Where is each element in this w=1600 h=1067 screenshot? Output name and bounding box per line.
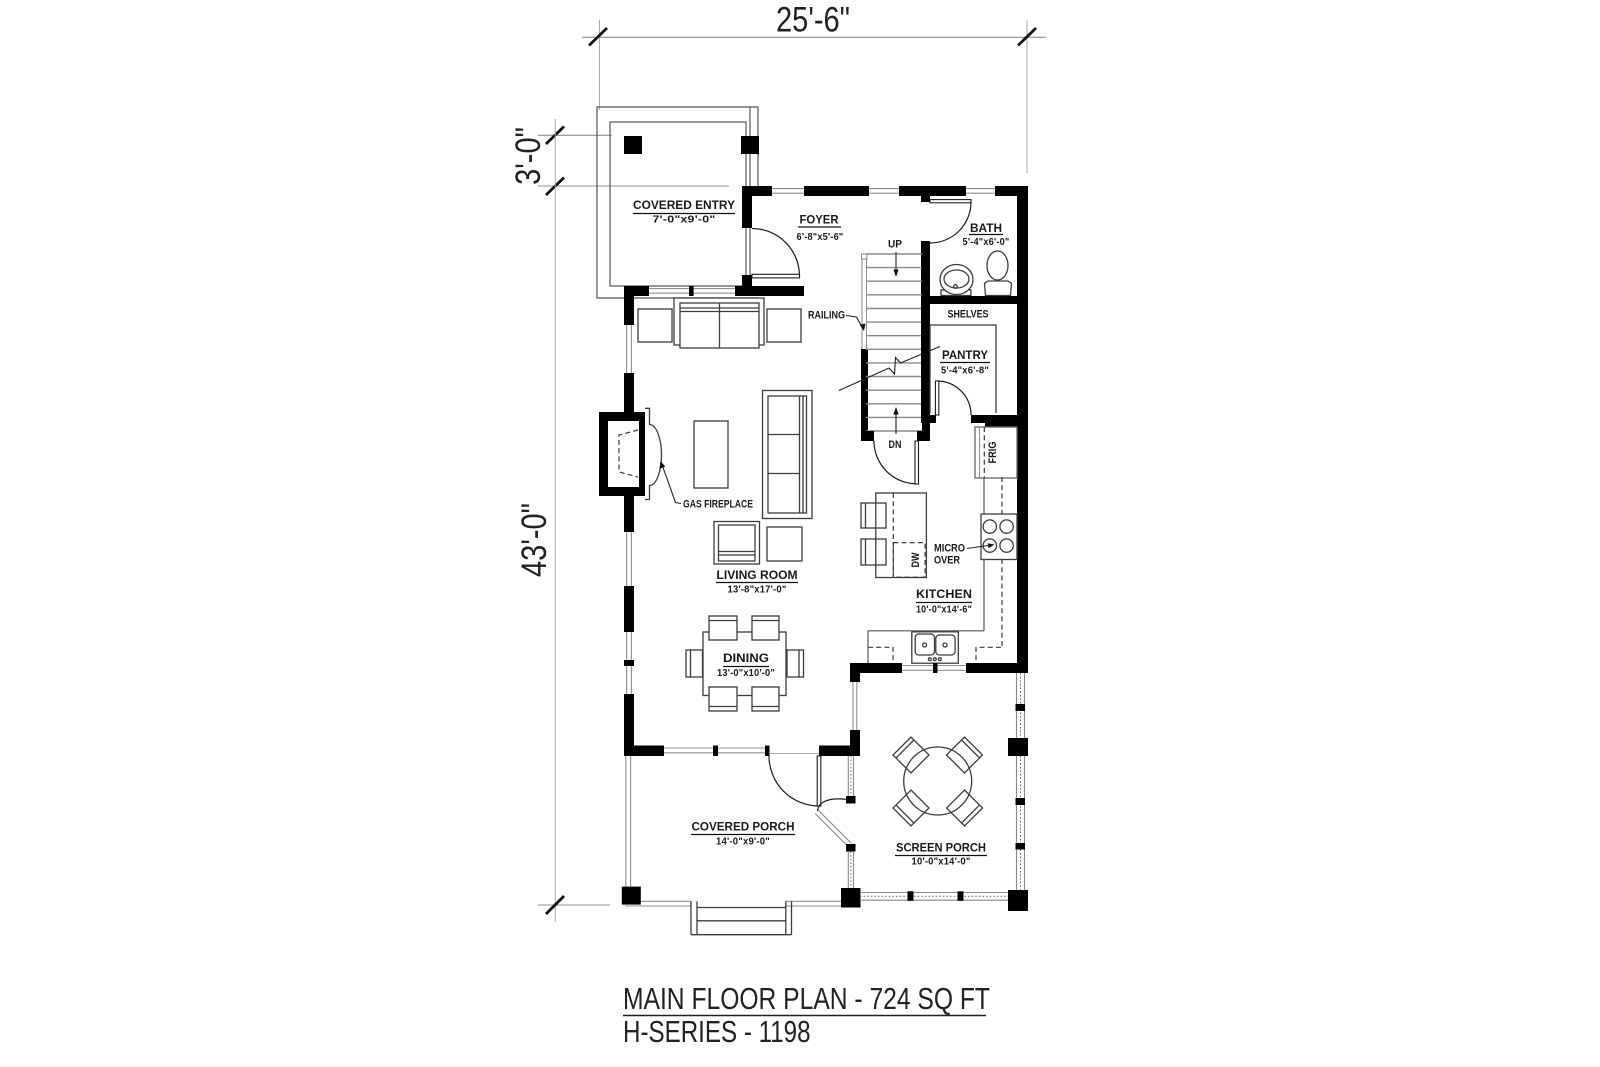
svg-text:UP: UP	[888, 239, 902, 251]
svg-text:LIVING ROOM: LIVING ROOM	[717, 568, 798, 582]
svg-text:7'-0"x9'-0": 7'-0"x9'-0"	[653, 215, 716, 226]
svg-text:MICRO: MICRO	[934, 543, 965, 555]
svg-text:3'-0": 3'-0"	[508, 127, 547, 185]
svg-text:OVER: OVER	[934, 555, 960, 567]
svg-text:43'-0": 43'-0"	[514, 503, 553, 577]
svg-text:SHELVES: SHELVES	[948, 309, 989, 321]
svg-text:10'-0"x14'-0": 10'-0"x14'-0"	[912, 857, 971, 868]
svg-text:DN: DN	[889, 439, 902, 451]
svg-text:FOYER: FOYER	[800, 213, 839, 227]
svg-text:10'-0"x14'-6": 10'-0"x14'-6"	[916, 605, 972, 616]
svg-text:5'-4"x6'-0": 5'-4"x6'-0"	[963, 237, 1010, 248]
svg-text:6'-8"x5'-6": 6'-8"x5'-6"	[797, 232, 844, 243]
svg-text:14'-0"x9'-0": 14'-0"x9'-0"	[716, 837, 770, 848]
svg-text:MAIN FLOOR PLAN - 724 SQ FT: MAIN FLOOR PLAN - 724 SQ FT	[623, 981, 990, 1015]
svg-text:GAS FIREPLACE: GAS FIREPLACE	[683, 499, 753, 511]
svg-text:13'-0"x10'-0": 13'-0"x10'-0"	[717, 668, 775, 679]
svg-text:DINING: DINING	[723, 651, 769, 665]
svg-text:25'-6": 25'-6"	[776, 0, 850, 39]
svg-text:FRIG: FRIG	[987, 442, 999, 464]
svg-text:COVERED PORCH: COVERED PORCH	[692, 820, 795, 834]
svg-text:13'-8"x17'-0": 13'-8"x17'-0"	[728, 585, 787, 596]
svg-text:DW: DW	[910, 552, 922, 568]
svg-text:COVERED ENTRY: COVERED ENTRY	[633, 198, 735, 212]
svg-text:PANTRY: PANTRY	[942, 348, 988, 362]
svg-text:H-SERIES - 1198: H-SERIES - 1198	[623, 1014, 811, 1049]
svg-text:BATH: BATH	[970, 221, 1002, 235]
svg-text:KITCHEN: KITCHEN	[916, 587, 972, 601]
svg-text:RAILING: RAILING	[808, 310, 845, 322]
svg-text:SCREEN PORCH: SCREEN PORCH	[896, 841, 986, 855]
svg-text:5'-4"x6'-8": 5'-4"x6'-8"	[941, 366, 989, 377]
